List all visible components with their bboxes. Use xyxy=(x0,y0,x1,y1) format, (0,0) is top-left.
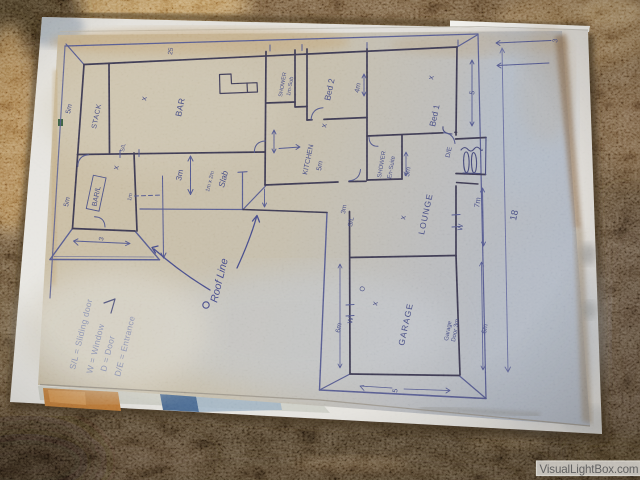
svg-text:VisualLightBox.com: VisualLightBox.com xyxy=(540,463,639,476)
